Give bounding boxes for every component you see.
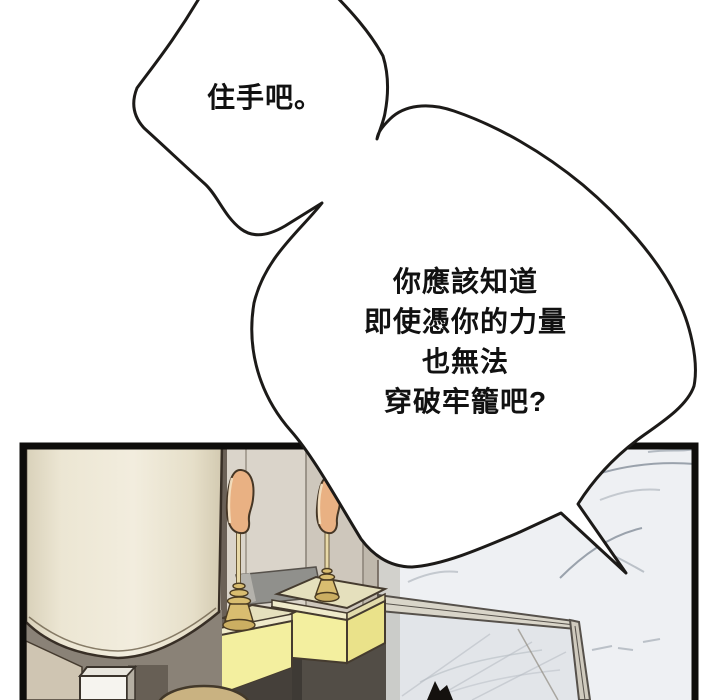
speech-line: 穿破牢籠吧? xyxy=(308,382,623,422)
speech-line: 也無法 xyxy=(308,342,623,382)
speech-line: 你應該知道 xyxy=(308,262,623,302)
speech-bubble-2-text: 你應該知道 即使憑你的力量 也無法 穿破牢籠吧? xyxy=(308,262,623,422)
lamp-base-post xyxy=(80,667,135,700)
speech-line: 即使憑你的力量 xyxy=(308,302,623,342)
speech-bubble-1-text: 住手吧。 xyxy=(155,78,375,118)
lamp-shade xyxy=(26,443,222,658)
comic-page: 住手吧。 你應該知道 即使憑你的力量 也無法 穿破牢籠吧? xyxy=(0,0,720,700)
